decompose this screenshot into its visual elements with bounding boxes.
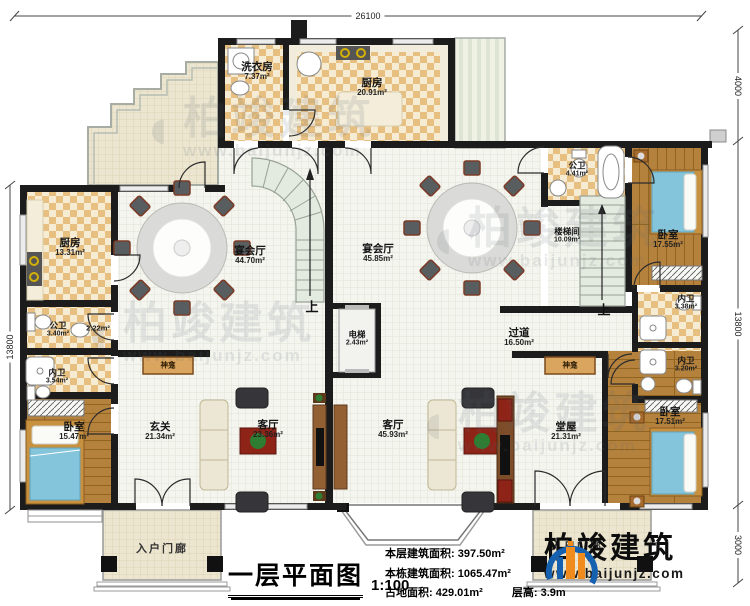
closet-area-label: 2.22m² (86, 324, 110, 333)
area-stats: 本层建筑面积: 397.50m² 本栋建筑面积: 1065.47m² 占地面积:… (385, 545, 566, 604)
dimension-right-bottom: 3000 (733, 532, 743, 558)
shrine-label-right: 神龛 (563, 360, 578, 371)
stair-up-label-right: 上 (597, 300, 610, 319)
room-label-banquet-right: 宴会厅45.85m² (362, 244, 394, 264)
room-label-elevator: 电梯2.43m² (346, 331, 368, 348)
room-label-bedroom-bottom-right: 卧室17.51m² (655, 407, 685, 427)
dimension-right-middle: 13800 (733, 308, 743, 339)
room-label-living-left: 客厅23.36m² (253, 420, 283, 440)
dimension-right-top: 4000 (733, 73, 743, 99)
room-label-banquet-left: 宴会厅44.70m² (234, 246, 266, 266)
floor-plan-page: ◖ 柏竣建筑 www.baijunjz.com ◖ 柏竣建筑 www.baiju… (0, 0, 750, 606)
room-label-stairwell: 楼梯间10.09m² (554, 228, 580, 245)
shrine-label-left: 神龛 (161, 360, 176, 371)
room-label-kitchen-top: 厨房20.91m² (357, 78, 387, 98)
room-label-private-bath-1: 内卫3.38m² (675, 295, 697, 312)
brand-logo: 柏竣建筑 www.baijunjz.com (540, 533, 685, 583)
dimension-top: 26100 (351, 11, 384, 21)
straight-staircase (580, 196, 625, 306)
room-label-foyer: 玄关21.34m² (145, 422, 175, 442)
room-label-main-hall: 堂屋21.31m² (551, 422, 581, 442)
room-label-living-right: 客厅45.93m² (378, 420, 408, 440)
bed-left-bedroom (26, 400, 84, 504)
room-label-corridor: 过道16.50m² (504, 328, 534, 348)
stat-total-area: 本栋建筑面积: 1065.47m² (385, 565, 566, 581)
room-label-kitchen-left: 厨房13.31m² (55, 238, 85, 258)
room-label-bedroom-top-right: 卧室17.55m² (653, 230, 683, 250)
porch-label-left: 入户门廊 (136, 540, 188, 556)
dimension-left: 13800 (5, 331, 15, 362)
room-label-bedroom-left: 卧室15.47m² (59, 422, 89, 442)
room-label-laundry: 洗衣房7.37m² (241, 62, 273, 82)
room-label-private-bath-2: 内卫3.20m² (675, 357, 697, 374)
side-terrace (455, 38, 726, 148)
stat-floor-area: 本层建筑面积: 397.50m² (385, 545, 566, 561)
plan-title: 一层平面图 (228, 556, 363, 598)
stat-land-area: 占地面积: 429.01m² 层高: 3.9m (385, 584, 566, 600)
kitchen-left-fixtures (27, 200, 43, 300)
brand-logo-icon (540, 533, 602, 597)
room-label-public-bath-left: 公卫3.40m² (47, 322, 69, 339)
stair-up-label-left: 上 (305, 297, 318, 316)
room-label-private-bath-left: 内卫3.54m² (46, 369, 68, 386)
room-label-public-bath-right: 公卫4.41m² (566, 162, 588, 179)
title-block: 一层平面图 1:100 (228, 556, 409, 598)
stepped-terrace (88, 62, 218, 185)
